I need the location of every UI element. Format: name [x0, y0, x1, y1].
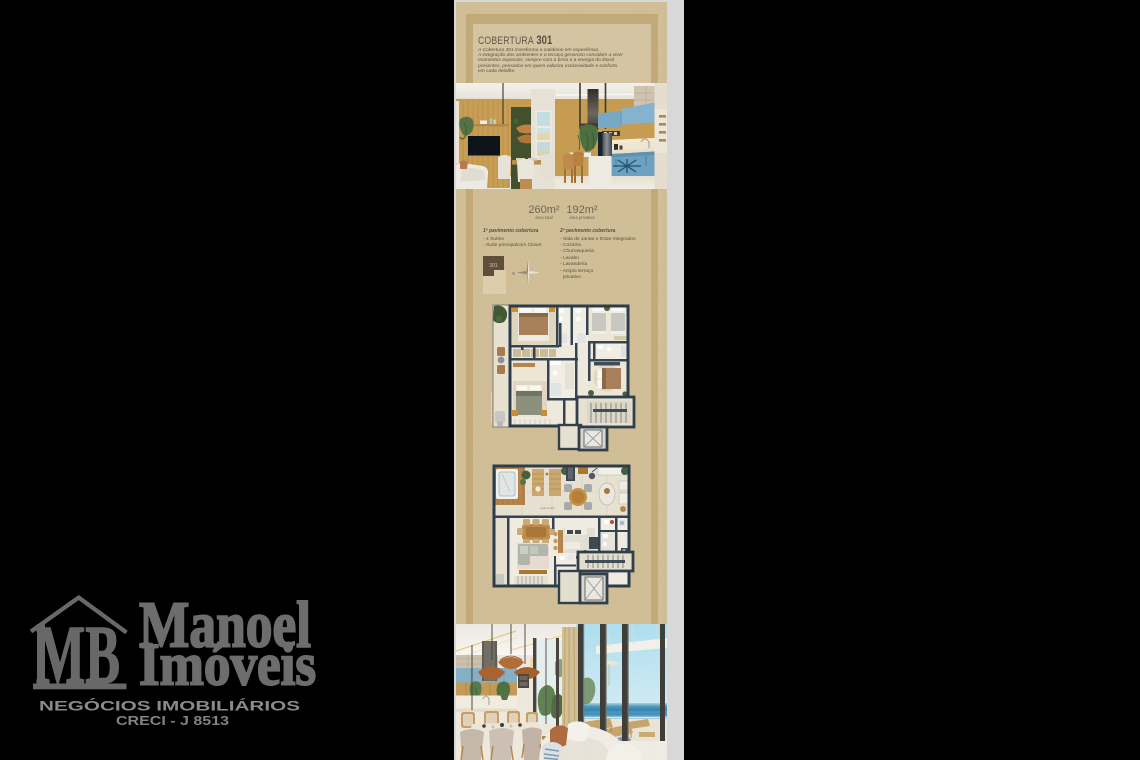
- svg-text:MB: MB: [36, 609, 120, 702]
- svg-text:Imóveis: Imóveis: [139, 632, 316, 698]
- svg-text:S: S: [512, 271, 515, 276]
- svg-text:NEGÓCIOS IMOBILIÁRIOS: NEGÓCIOS IMOBILIÁRIOS: [39, 699, 300, 714]
- svg-text:CRECI - J 8513: CRECI - J 8513: [116, 714, 229, 728]
- svg-text:amplo terraço: amplo terraço: [540, 507, 555, 510]
